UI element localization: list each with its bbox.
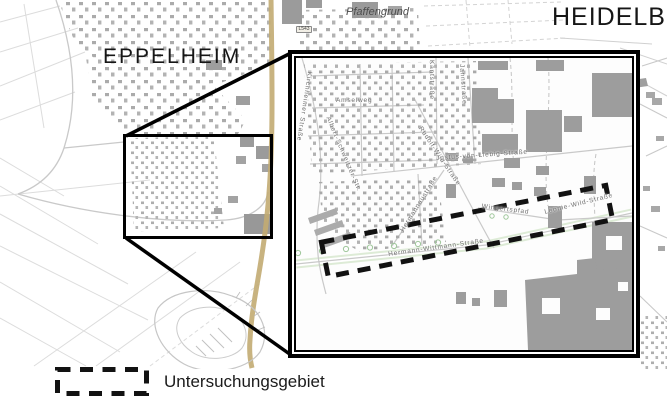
study-area-legend-symbol (54, 366, 150, 398)
street-label-kantstrasse: Kantstraße (428, 60, 435, 100)
inset-map: Kirchheimer Straße Amselweg Albert-Schwe… (294, 56, 634, 352)
locator-rectangle (123, 134, 273, 239)
connector-line-bottom (126, 238, 291, 355)
city-label-heidelberg: HEIDELBERG (552, 5, 667, 30)
road-shield-l543: L543 (296, 26, 312, 33)
district-label-pfaffengrund: Pfaffengrund (346, 6, 409, 18)
study-area-legend-label: Untersuchungsgebiet (164, 372, 325, 392)
inset-industrial-buildings (446, 60, 632, 350)
street-label-amselweg: Amselweg (336, 98, 372, 105)
city-label-eppelheim: EPPELHEIM (103, 46, 241, 67)
inset-map-frame: Kirchheimer Straße Amselweg Albert-Schwe… (288, 50, 640, 358)
map-figure: EPPELHEIM HEIDELBERG Pfaffengrund L543 (0, 0, 667, 403)
